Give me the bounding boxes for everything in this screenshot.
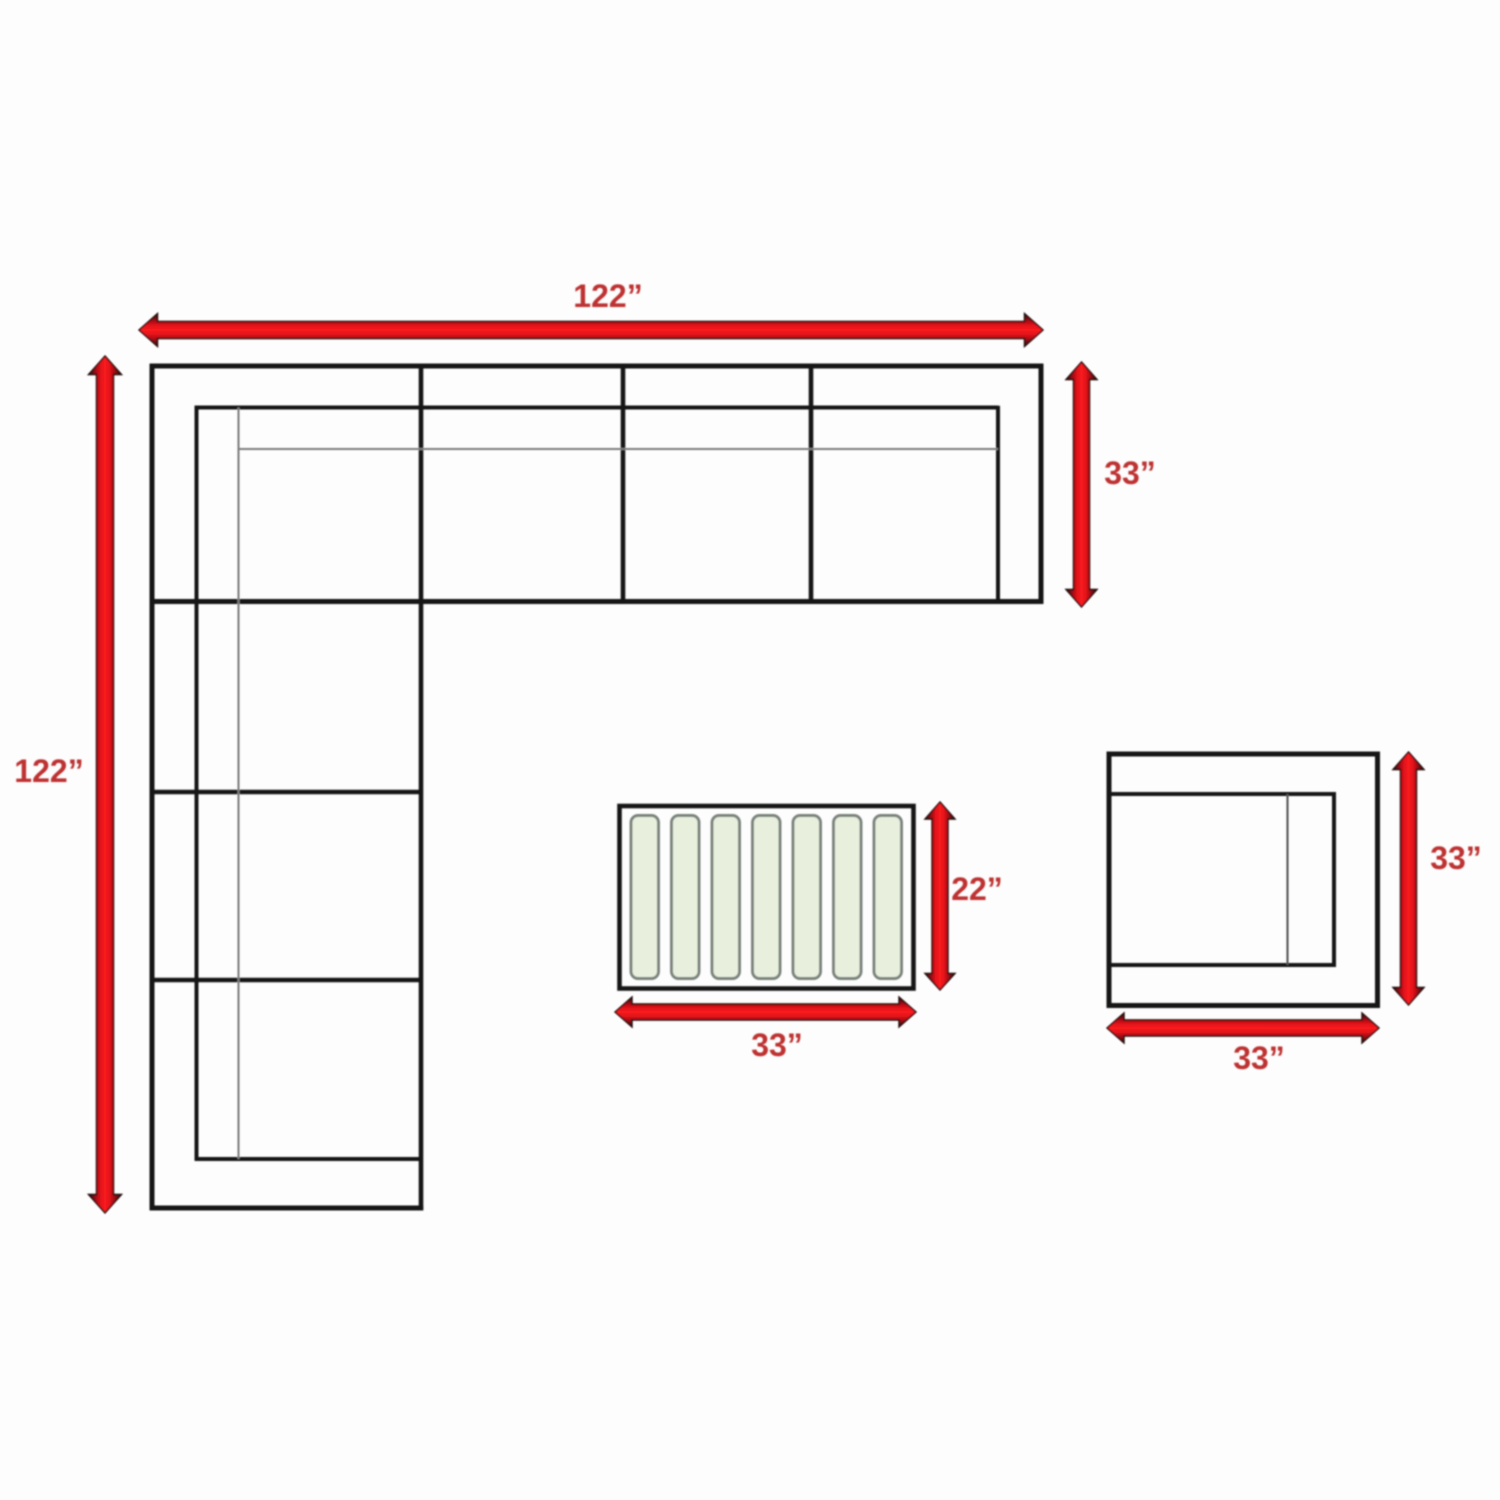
svg-text:122”: 122”: [14, 753, 83, 789]
svg-text:33”: 33”: [1430, 840, 1482, 876]
svg-text:22”: 22”: [951, 871, 1003, 907]
svg-text:33”: 33”: [1104, 455, 1156, 491]
svg-text:122”: 122”: [573, 278, 642, 314]
svg-text:33”: 33”: [751, 1027, 803, 1063]
svg-text:33”: 33”: [1233, 1040, 1285, 1076]
